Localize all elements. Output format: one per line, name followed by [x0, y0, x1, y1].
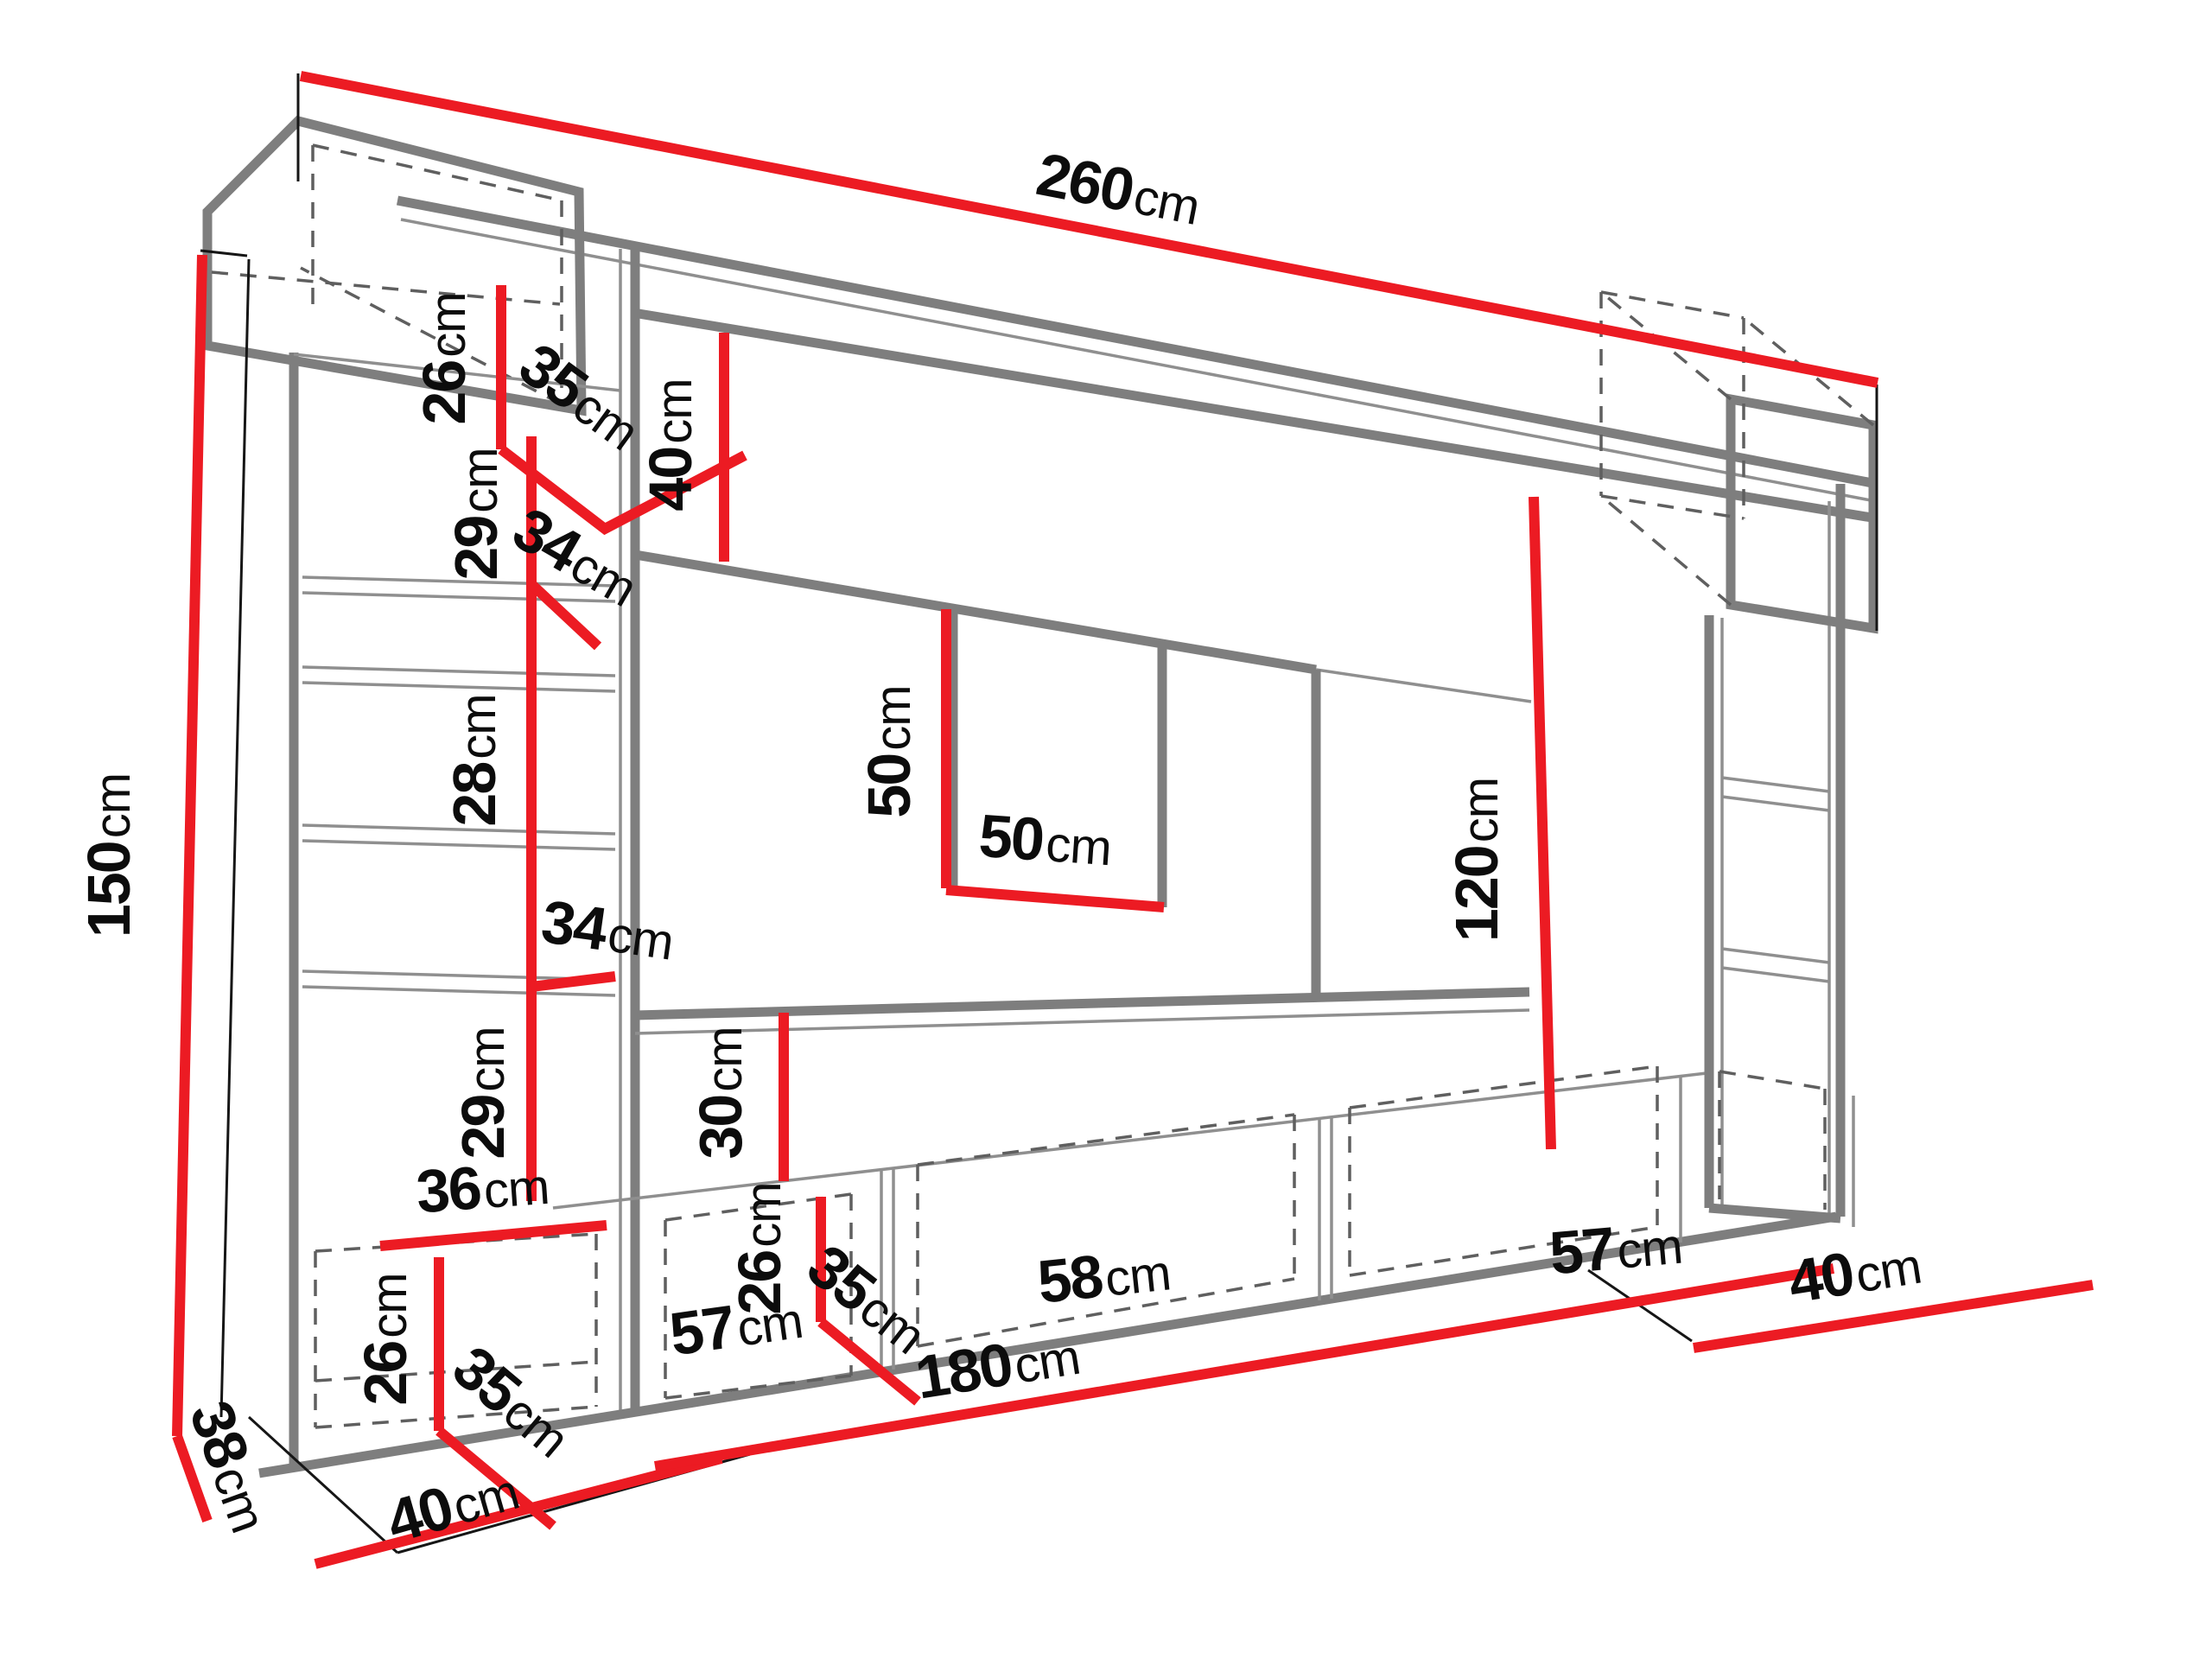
dim-label-base-left-width: 40cm: [379, 1454, 525, 1555]
upper-shelf-edge-right: [1316, 670, 1531, 702]
dim-label-left-base-height: 26cm: [352, 1273, 419, 1405]
dim-line-right-column-height: [1534, 497, 1551, 1149]
dim-label-tv-niche-width: 50cm: [977, 802, 1114, 878]
hidden-edge: [1601, 292, 1744, 318]
hidden-edge: [1601, 496, 1744, 518]
dim-label-top-panel-height: 40cm: [637, 378, 704, 511]
dim-line-overall-height-left: [177, 255, 202, 1436]
middle-section: [635, 555, 1531, 1033]
wall-unit-drawing: 260cm 150cm 26cm 35cm 40cm 29cm 34cm 28c…: [0, 0, 2212, 1659]
dim-label-middle-gap-height: 30cm: [687, 1027, 754, 1159]
shelf: [1722, 949, 1829, 963]
hidden-edge: [1601, 496, 1731, 605]
dim-label-overall-height-left: 150cm: [75, 773, 143, 938]
floor-left-depth: [249, 1417, 397, 1553]
dim-label-tv-niche-height: 50cm: [855, 685, 923, 817]
shelf: [302, 683, 615, 691]
shelf: [302, 667, 615, 676]
shelf: [1722, 778, 1829, 791]
hidden-edge: [1350, 1066, 1657, 1108]
shelf: [302, 987, 615, 995]
right-column-bottom: [1709, 1208, 1840, 1218]
dim-label-left-column-section-3: 29cm: [449, 1027, 517, 1159]
shelf: [1722, 968, 1829, 982]
lower-shelf-edge: [635, 992, 1529, 1015]
dim-label-base-right-depth: 40cm: [1783, 1229, 1925, 1316]
dim-label-topleft-cabinet-height: 26cm: [410, 292, 478, 424]
dimension-labels: 260cm 150cm 26cm 35cm 40cm 29cm 34cm 28c…: [75, 140, 1925, 1556]
hidden-edge: [1719, 1071, 1825, 1089]
shelf: [302, 593, 615, 601]
shelf: [302, 841, 615, 849]
top-panel-inner-edge: [401, 219, 1875, 501]
hidden-edge: [212, 272, 560, 304]
dim-line-tv-niche-width: [946, 890, 1164, 907]
furniture-dimension-diagram: 260cm 150cm 26cm 35cm 40cm 29cm 34cm 28c…: [0, 0, 2212, 1659]
dim-label-left-column-gap-2: 34cm: [537, 887, 678, 973]
left-side-silhouette: [221, 259, 249, 1417]
dim-label-left-column-section-1: 29cm: [442, 448, 510, 580]
dim-label-left-column-width: 36cm: [414, 1149, 550, 1225]
upper-shelf-edge: [635, 555, 1316, 670]
shelf: [1722, 797, 1829, 810]
dim-label-left-column-section-2: 28cm: [441, 694, 508, 826]
dim-label-right-column-height: 120cm: [1443, 778, 1510, 942]
